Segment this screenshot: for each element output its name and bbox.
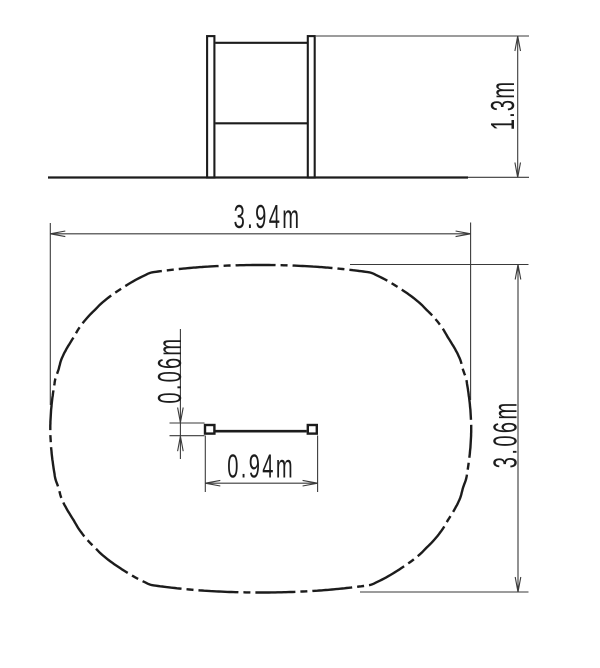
svg-text:3.94m: 3.94m bbox=[234, 198, 302, 235]
svg-text:1.3m: 1.3m bbox=[484, 81, 521, 131]
svg-text:0.94m: 0.94m bbox=[227, 447, 295, 484]
svg-text:3.06m: 3.06m bbox=[486, 400, 523, 468]
svg-text:0.06m: 0.06m bbox=[151, 337, 188, 404]
